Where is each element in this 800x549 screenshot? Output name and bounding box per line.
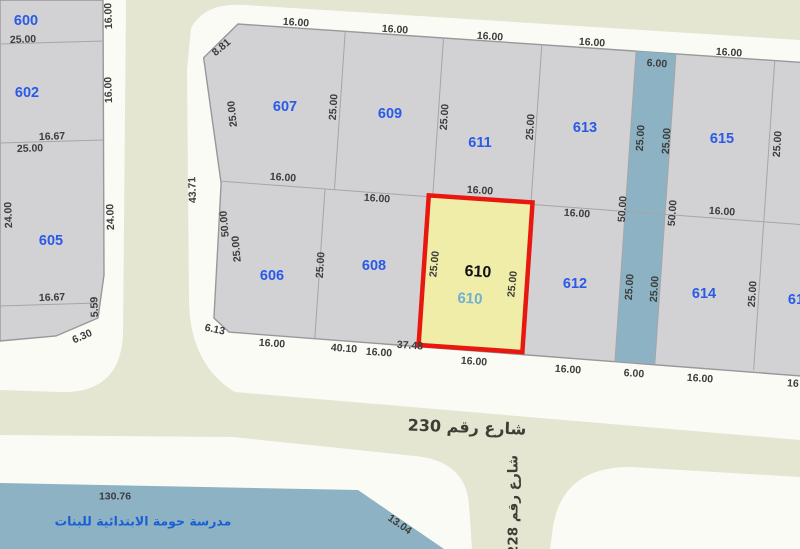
dimension-label: 43.71 [186, 176, 199, 203]
dimension-label: 16.00 [282, 16, 309, 30]
street-228-label: شارع رقم 228 [506, 455, 522, 549]
plot-number-600: 600 [14, 13, 38, 29]
dimension-label: 37.48 [396, 339, 423, 353]
dimension-label: 25.00 [10, 33, 37, 46]
plot-number-611: 611 [468, 135, 491, 151]
plot-number-615: 615 [710, 131, 734, 147]
dimension-label: 25.00 [634, 124, 648, 151]
plot-number-613: 613 [573, 120, 597, 136]
school-name-label: مدرسة حومة الابتدائية للبنات [55, 513, 232, 528]
dimension-label: 24.00 [104, 203, 117, 230]
dimension-label: 24.00 [2, 201, 15, 228]
dimension-label: 16.00 [466, 184, 493, 198]
dimension-label: 50.00 [666, 199, 680, 226]
parcel-610-number-secondary: 610 [457, 290, 483, 308]
dimension-label: 16.00 [102, 76, 115, 103]
dimension-label: 25.00 [746, 280, 760, 307]
dimension-label: 25.00 [771, 130, 785, 157]
dimension-label: 16 [787, 377, 800, 390]
dimension-label: 25.00 [438, 103, 452, 130]
dimension-label: 16.00 [102, 2, 115, 29]
plot-number-608: 608 [362, 258, 386, 274]
dimension-label: 16.00 [554, 363, 581, 377]
dimension-label: 25.00 [230, 235, 244, 262]
dimension-label: 16.00 [715, 46, 742, 60]
dimension-label: 16.00 [563, 207, 590, 221]
dimension-label: 50.00 [218, 210, 232, 237]
plot-number-609: 609 [378, 106, 402, 122]
dimension-label: 16.67 [39, 130, 66, 143]
dimension-label: 16.67 [39, 291, 66, 304]
dimension-label: 130.76 [99, 491, 131, 503]
parcel-610-number: 610 [464, 263, 492, 281]
dimension-label: 25.00 [524, 113, 538, 140]
block-606-616[interactable] [185, 22, 800, 377]
dimension-label: 25.00 [327, 93, 341, 120]
plot-number-605: 605 [39, 233, 63, 249]
plot-number-606: 606 [260, 268, 284, 284]
block-600-605-outline [0, 0, 104, 341]
dimension-label: 40.10 [330, 342, 357, 356]
dimension-label: 16.00 [460, 355, 487, 369]
map-stage: 25.0016.0016.0016.6725.0024.0024.0016.67… [0, 0, 800, 549]
dimension-label: 25.00 [648, 275, 662, 302]
dimension-label: 16.00 [258, 337, 285, 351]
map-canvas[interactable]: 25.0016.0016.0016.6725.0024.0024.0016.67… [0, 0, 800, 549]
dimension-label: 25.00 [623, 273, 637, 300]
dimension-label: 6.00 [646, 57, 667, 70]
plot-number-612: 612 [563, 276, 587, 292]
plot-number-61: 61 [788, 292, 800, 308]
dimension-label: 16.00 [363, 192, 390, 206]
dimension-label: 16.00 [381, 23, 408, 37]
dimension-label: 16.00 [708, 205, 735, 219]
dimension-label: 16.00 [476, 30, 503, 44]
dimension-label: 5.59 [88, 296, 101, 317]
dimension-label: 16.00 [686, 372, 713, 386]
plot-number-607: 607 [273, 99, 297, 115]
plot-number-602: 602 [15, 85, 39, 101]
dimension-label: 25.00 [660, 127, 674, 154]
dimension-label: 25.00 [314, 251, 328, 278]
dimension-label: 50.00 [616, 195, 630, 222]
dimension-label: 16.00 [578, 36, 605, 50]
dimension-label: 6.00 [623, 367, 644, 380]
plot-number-614: 614 [692, 286, 716, 302]
dimension-label: 16.00 [269, 171, 296, 185]
block-600-605[interactable] [0, 0, 104, 341]
dimension-label: 16.00 [365, 346, 392, 360]
dimension-label: 25.00 [17, 142, 44, 155]
